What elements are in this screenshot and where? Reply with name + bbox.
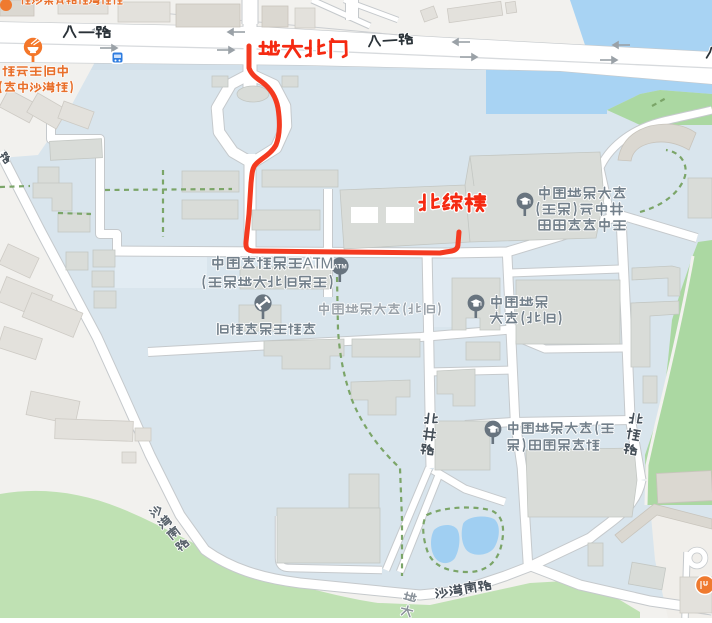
svg-text:ATM: ATM bbox=[333, 264, 347, 271]
svg-text:M: M bbox=[321, 256, 334, 273]
